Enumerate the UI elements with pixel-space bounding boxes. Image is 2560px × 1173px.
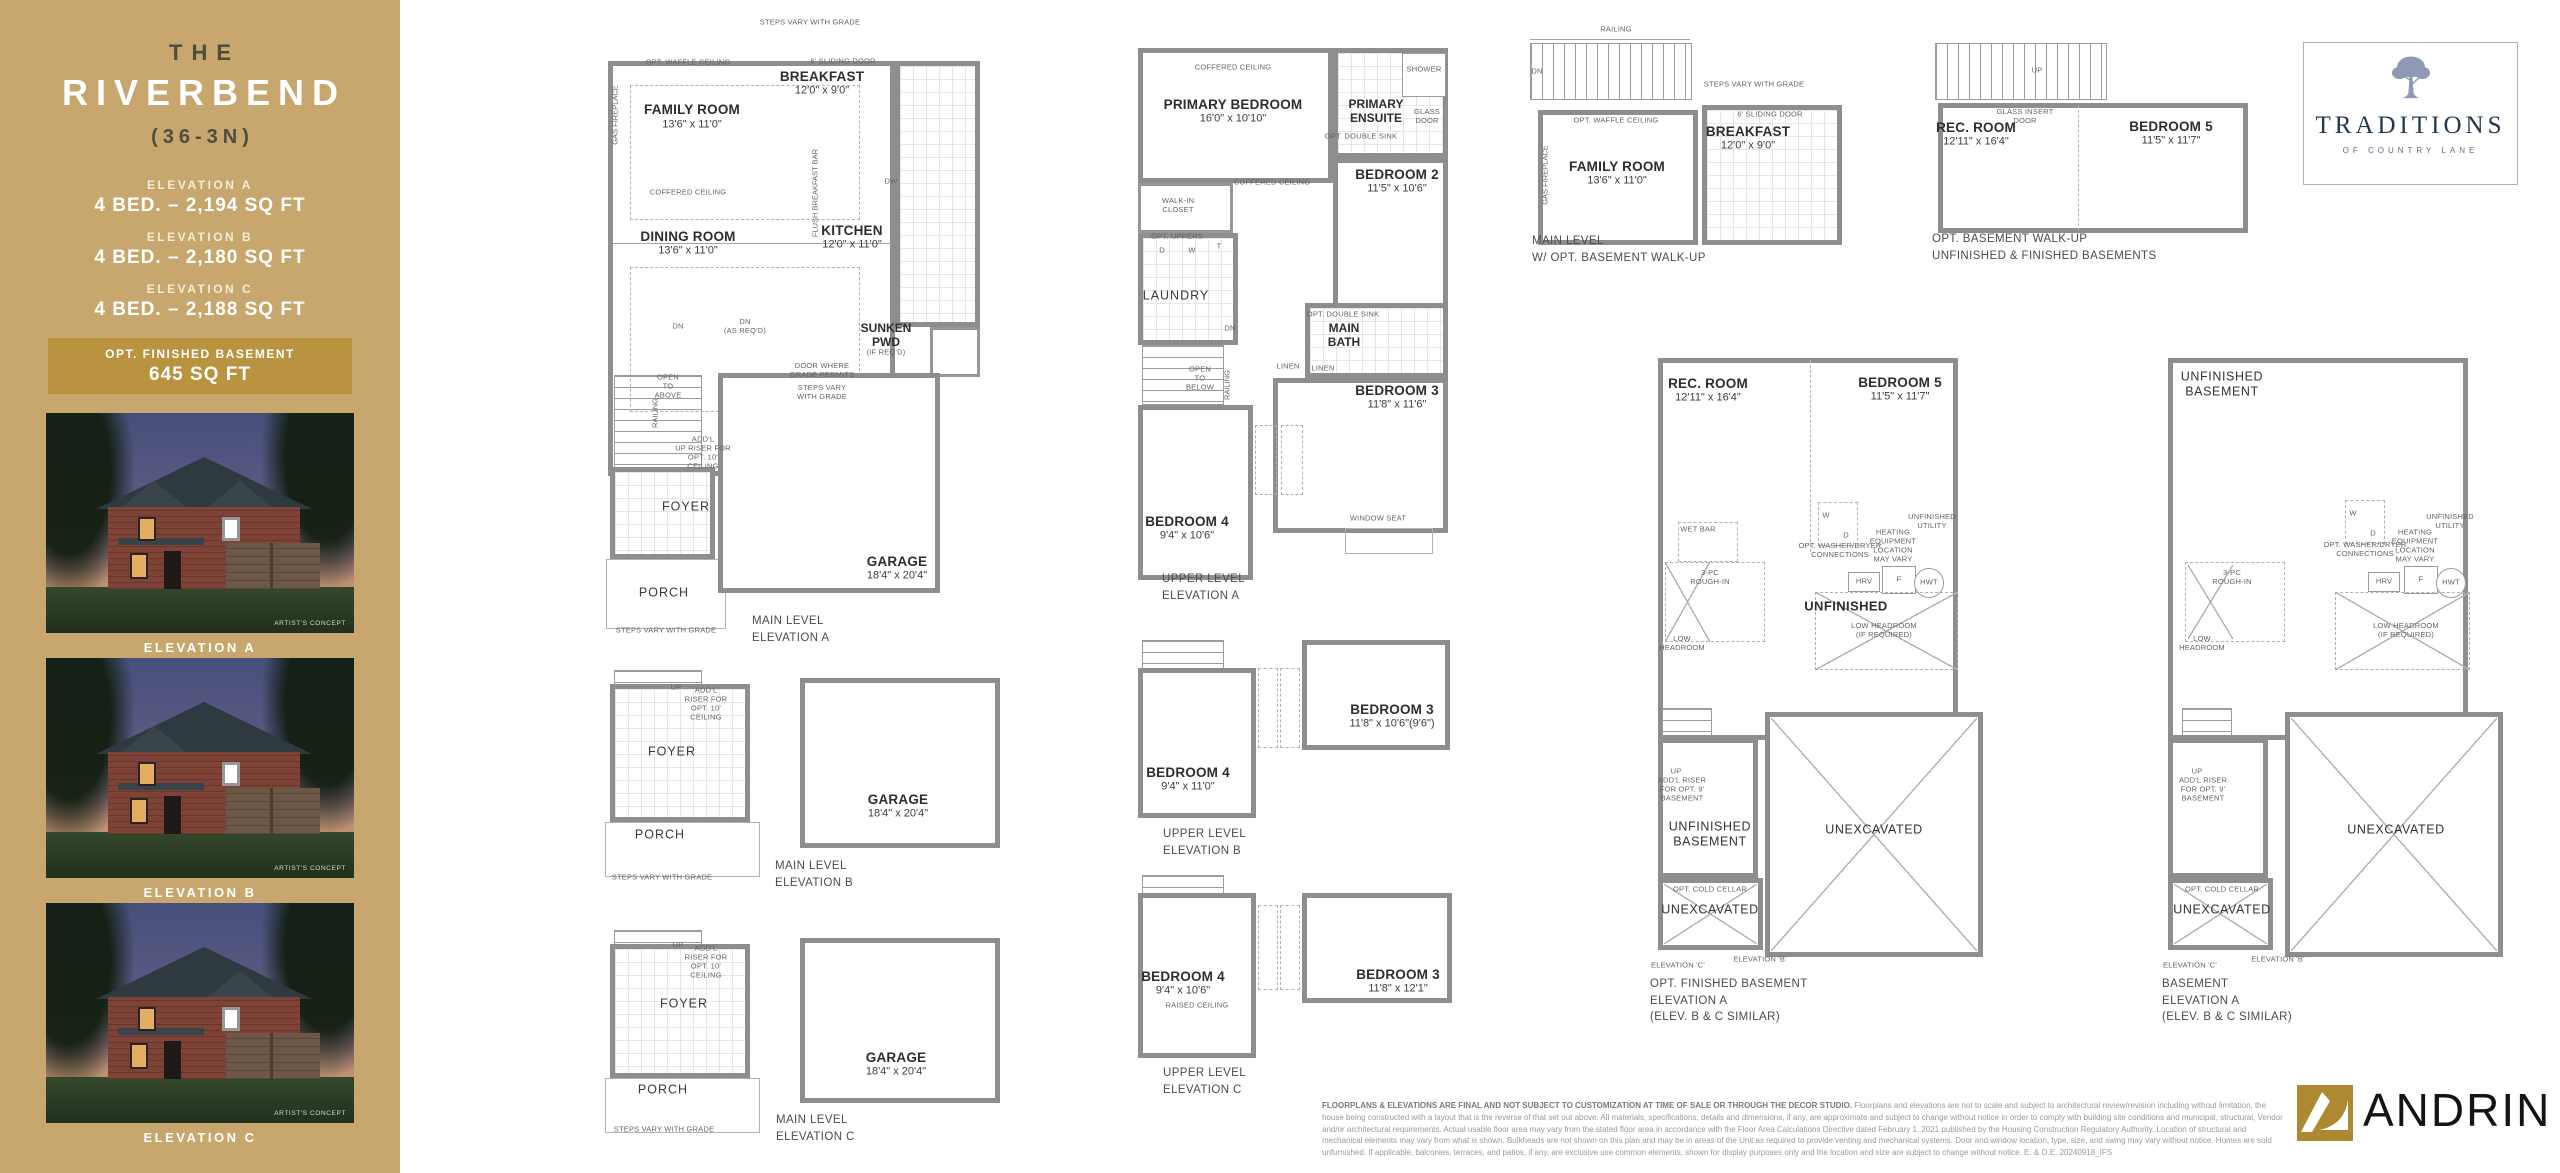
plan-label: BEDROOM 3 bbox=[1355, 383, 1439, 399]
plan-label: RAILING bbox=[652, 398, 661, 428]
washer-dryer-outline bbox=[2345, 500, 2385, 544]
shower-stall bbox=[1402, 53, 1446, 97]
plan-upper-level-elevation-c: BEDROOM 49'4" x 10'6"RAISED CEILINGBEDRO… bbox=[1130, 875, 1560, 1135]
stairs bbox=[1142, 640, 1224, 670]
plan-label: UNFINISHED BASEMENT bbox=[1669, 819, 1751, 849]
plan-label: SUNKEN PWD bbox=[861, 321, 912, 349]
garage-illustration bbox=[226, 788, 320, 834]
plan-label: 11'8" x 11'6" bbox=[1368, 399, 1427, 412]
opt-basement-band: OPT. FINISHED BASEMENT 645 SQ FT bbox=[48, 338, 352, 394]
plan-label: UNFINISHED BASEMENT bbox=[2181, 369, 2263, 399]
plan-label: GARAGE bbox=[868, 792, 928, 808]
closet-outline bbox=[1255, 425, 1277, 495]
plan-label: PRIMARY ENSUITE bbox=[1349, 97, 1404, 125]
bedroom-3-outline bbox=[1302, 640, 1450, 750]
plan-label: BEDROOM 3 bbox=[1356, 967, 1440, 983]
plan-label: RAILING bbox=[1224, 370, 1233, 400]
andrin-logo: ANDRIN bbox=[2297, 1085, 2560, 1143]
plan-label: HEATING EQUIPMENT LOCATION MAY VARY bbox=[1870, 528, 1916, 563]
plan-label: LOW HEADROOM bbox=[2179, 635, 2225, 653]
photo-label-elevation-a: ELEVATION A bbox=[46, 633, 354, 661]
window-illustration bbox=[130, 1043, 148, 1069]
plan-label: ADD'L RISER FOR OPT. 9' BASEMENT bbox=[2179, 777, 2227, 804]
plan-label: BEDROOM 3 bbox=[1350, 702, 1434, 718]
plan-label: HRV bbox=[2376, 578, 2392, 587]
tree-icon bbox=[2385, 53, 2437, 105]
plan-caption: MAIN LEVEL ELEVATION C bbox=[776, 1112, 855, 1145]
plan-label: REC. ROOM bbox=[1936, 120, 2016, 136]
closet-outline bbox=[1280, 905, 1300, 990]
plan-label: BEDROOM 5 bbox=[1858, 375, 1942, 391]
plan-label: MAIN BATH bbox=[1328, 321, 1360, 349]
plan-label: OPT. UPPERS bbox=[1151, 233, 1203, 242]
elevation-c-photo-card: ARTIST'S CONCEPT ELEVATION C bbox=[46, 903, 354, 1151]
model-prefix: THE bbox=[0, 40, 400, 66]
garage-illustration bbox=[226, 1033, 320, 1079]
plan-label: 12'11" x 16'4" bbox=[1675, 392, 1741, 405]
elevation-a-photo-card: ARTIST'S CONCEPT ELEVATION A bbox=[46, 413, 354, 661]
plan-label: 9'4" x 10'6" bbox=[1156, 985, 1210, 998]
plan-label: FOYER bbox=[660, 997, 708, 1012]
andrin-mark-icon bbox=[2297, 1085, 2353, 1141]
plan-caption: UPPER LEVEL ELEVATION C bbox=[1163, 1065, 1246, 1098]
plan-label: LOW HEADROOM bbox=[1659, 635, 1705, 653]
plan-label: FOYER bbox=[662, 500, 710, 515]
plan-label: LAUNDRY bbox=[1143, 289, 1210, 304]
door-illustration bbox=[164, 551, 181, 589]
stairs bbox=[1935, 43, 2107, 100]
railing-line bbox=[1530, 39, 1690, 40]
plan-label: GARAGE bbox=[867, 554, 927, 570]
plan-label: DN (AS REQ'D) bbox=[724, 318, 766, 336]
plan-label: SHOWER bbox=[1407, 66, 1442, 75]
plan-main-level-elevation-c: UPADD'L RISER FOR OPT. 10' CEILINGFOYERP… bbox=[600, 930, 1020, 1173]
plan-label: 6' SLIDING DOOR bbox=[810, 58, 875, 67]
plan-label: W bbox=[1188, 247, 1195, 256]
model-code: (36-3N) bbox=[0, 126, 400, 149]
plan-label: UP bbox=[671, 684, 682, 693]
plan-label: BEDROOM 2 bbox=[1355, 167, 1439, 183]
porch-roof-illustration bbox=[118, 1028, 204, 1035]
plan-caption: UPPER LEVEL ELEVATION B bbox=[1163, 826, 1246, 859]
elevation-a-summary: ELEVATION A 4 BED. – 2,194 SQ FT bbox=[0, 178, 400, 217]
plan-label: D bbox=[1159, 247, 1165, 256]
bedroom-4-outline bbox=[1138, 405, 1253, 580]
plan-caption: UPPER LEVEL ELEVATION A bbox=[1162, 571, 1245, 604]
porch-roof-illustration bbox=[118, 783, 204, 790]
plan-label: REC. ROOM bbox=[1668, 376, 1748, 392]
plan-label: GAS FIREPLACE bbox=[1542, 145, 1551, 205]
plan-label: T bbox=[1217, 243, 1222, 252]
plan-label: (IF REQ'D) bbox=[867, 349, 906, 358]
plan-label: BEDROOM 4 bbox=[1146, 765, 1230, 781]
artists-concept-credit: ARTIST'S CONCEPT bbox=[274, 620, 346, 627]
unfinished-basement-hall bbox=[2168, 738, 2268, 878]
plan-label: FAMILY ROOM bbox=[1569, 159, 1665, 175]
plan-label: HWT bbox=[1920, 579, 1938, 588]
door-illustration bbox=[164, 796, 181, 834]
plan-label: 12'0" x 9'0" bbox=[795, 85, 849, 98]
plan-label: ELEVATION 'B' bbox=[1733, 956, 1787, 965]
door-illustration bbox=[164, 1041, 181, 1079]
plan-label: D bbox=[1843, 532, 1849, 541]
plan-label: 13'6" x 11'0" bbox=[1587, 175, 1647, 188]
plan-label: 11'5" x 10'6" bbox=[1367, 183, 1427, 196]
plan-label: STEPS VARY WITH GRADE bbox=[616, 627, 716, 636]
plan-label: HRV bbox=[1856, 578, 1872, 587]
plan-label: STEPS VARY WITH GRADE bbox=[760, 19, 860, 28]
plan-label: UNEXCAVATED bbox=[2173, 903, 2271, 918]
plan-label: OPT. COLD CELLAR bbox=[2185, 886, 2259, 895]
house-rendering-elevation-a: ARTIST'S CONCEPT bbox=[46, 413, 354, 633]
plan-label: 18'4" x 20'4" bbox=[866, 1066, 926, 1079]
plan-caption: MAIN LEVEL ELEVATION B bbox=[775, 858, 853, 891]
plan-label: BEDROOM 4 bbox=[1141, 969, 1225, 985]
sidebar: THE RIVERBEND (36-3N) ELEVATION A 4 BED.… bbox=[0, 0, 400, 1173]
plan-label: GAS FIREPLACE bbox=[612, 85, 621, 145]
plan-label: DOOR WHERE GRADE PERMITS bbox=[790, 362, 855, 380]
elevation-c-spec: 4 BED. – 2,188 SQ FT bbox=[0, 299, 400, 321]
plan-opt-finished-basement: REC. ROOM12'11" x 16'4"BEDROOM 511'5" x … bbox=[1650, 350, 2090, 1012]
plan-label: 18'4" x 20'4" bbox=[867, 570, 927, 583]
plan-label: ELEVATION 'C' bbox=[2163, 962, 2217, 971]
house-rendering-elevation-c: ARTIST'S CONCEPT bbox=[46, 903, 354, 1123]
plan-label: FAMILY ROOM bbox=[644, 102, 740, 118]
plan-label: ELEVATION 'B' bbox=[2251, 956, 2305, 965]
plan-label: UNEXCAVATED bbox=[2347, 823, 2445, 838]
disclaimer-bold-intro: FLOORPLANS & ELEVATIONS ARE FINAL AND NO… bbox=[1322, 1101, 1852, 1110]
plan-label: 12'0" x 9'0" bbox=[1721, 140, 1775, 153]
plan-label: 11'5" x 11'7" bbox=[1871, 391, 1930, 404]
plan-label: 11'8" x 12'1" bbox=[1368, 983, 1428, 996]
plan-label: UNEXCAVATED bbox=[1825, 823, 1923, 838]
andrin-wordmark: ANDRIN bbox=[2363, 1083, 2551, 1137]
window-illustration bbox=[222, 1007, 240, 1031]
plan-label: 6' SLIDING DOOR bbox=[1737, 111, 1802, 120]
plan-caption: MAIN LEVEL W/ OPT. BASEMENT WALK-UP bbox=[1532, 233, 1706, 266]
window-illustration bbox=[138, 517, 156, 541]
porch-roof-illustration bbox=[118, 538, 204, 545]
stairs bbox=[1530, 43, 1692, 100]
plan-label: LINEN bbox=[1311, 365, 1334, 374]
traditions-wordmark: TRADITIONS bbox=[2304, 112, 2517, 140]
plan-upper-level-elevation-b: BEDROOM 311'8" x 10'6"(9'6")BEDROOM 49'4… bbox=[1130, 640, 1560, 895]
elevation-a-spec: 4 BED. – 2,194 SQ FT bbox=[0, 195, 400, 217]
plan-upper-level-elevation-a: COFFERED CEILINGPRIMARY BEDROOM16'0" x 1… bbox=[1130, 15, 1560, 650]
plan-label: 12'11" x 16'4" bbox=[1943, 136, 2009, 149]
traditions-logo: TRADITIONS OF COUNTRY LANE bbox=[2303, 42, 2518, 185]
plan-label: UNFINISHED UTILITY bbox=[1908, 513, 1956, 531]
window-illustration bbox=[138, 762, 156, 786]
plan-label: DN bbox=[1224, 325, 1235, 334]
plan-label: DN bbox=[1531, 68, 1542, 77]
elevation-b-label: ELEVATION B bbox=[0, 230, 400, 244]
elevation-a-label: ELEVATION A bbox=[0, 178, 400, 192]
plan-label: OPT. WAFFLE CEILING bbox=[1574, 117, 1659, 126]
closet-outline bbox=[1258, 668, 1278, 748]
plan-label: UNEXCAVATED bbox=[1661, 903, 1759, 918]
plan-label: OPEN TO BELOW bbox=[1186, 366, 1214, 393]
riverbend-floorplan-brochure: { "sidebar": { "title_pre": "THE", "titl… bbox=[0, 0, 2560, 1173]
plan-label: 3-PC ROUGH-IN bbox=[2212, 569, 2252, 587]
plan-label: DINING ROOM bbox=[640, 229, 735, 245]
plan-label: RAILING bbox=[1600, 26, 1631, 35]
photo-label-elevation-c: ELEVATION C bbox=[46, 1123, 354, 1151]
plan-caption: OPT. BASEMENT WALK-UP UNFINISHED & FINIS… bbox=[1932, 231, 2157, 264]
plan-label: ADD'L RISER FOR OPT. 10' CEILING bbox=[685, 686, 728, 721]
plan-label: UP bbox=[673, 942, 684, 951]
artists-concept-credit: ARTIST'S CONCEPT bbox=[274, 865, 346, 872]
closet-outline bbox=[1281, 425, 1303, 495]
plan-label: D bbox=[2370, 530, 2376, 539]
plan-label: OPT. DOUBLE SINK bbox=[1325, 133, 1397, 142]
plan-label: STEPS VARY WITH GRADE bbox=[1704, 81, 1804, 90]
plan-label: 16'0" x 10'10" bbox=[1200, 113, 1266, 126]
plan-label: WET BAR bbox=[1680, 526, 1715, 535]
closet-outline bbox=[1258, 905, 1278, 990]
plan-label: OPT. WAFFLE CEILING bbox=[646, 59, 731, 68]
plan-label: BREAKFAST bbox=[1706, 124, 1790, 140]
window-illustration bbox=[138, 1007, 156, 1031]
plan-label: F bbox=[1897, 576, 1902, 585]
plan-caption: MAIN LEVEL ELEVATION A bbox=[752, 613, 829, 646]
plan-label: KITCHEN bbox=[821, 223, 882, 239]
kitchen-breakfast-area bbox=[895, 61, 980, 327]
plan-label: PORCH bbox=[639, 586, 689, 601]
plan-caption: BASEMENT ELEVATION A (ELEV. B & C SIMILA… bbox=[2162, 976, 2292, 1026]
plan-main-level-walkup: RAILINGDNSTEPS VARY WITH GRADEOPT. WAFFL… bbox=[1530, 15, 1960, 265]
opt-basement-label: OPT. FINISHED BASEMENT bbox=[48, 347, 352, 361]
elevation-c-summary: ELEVATION C 4 BED. – 2,188 SQ FT bbox=[0, 282, 400, 321]
plan-label: GARAGE bbox=[866, 1050, 926, 1066]
plan-label: HWT bbox=[2442, 579, 2460, 588]
garage-outline bbox=[800, 678, 1000, 848]
plan-label: 11'8" x 10'6"(9'6") bbox=[1349, 718, 1434, 731]
plan-label: BEDROOM 5 bbox=[2129, 119, 2213, 135]
plan-label: 13'6" x 11'0" bbox=[662, 119, 722, 132]
plan-label: STEPS VARY WITH GRADE bbox=[797, 384, 847, 402]
house-rendering-elevation-b: ARTIST'S CONCEPT bbox=[46, 658, 354, 878]
plan-label: W bbox=[1822, 512, 1829, 521]
plan-label: WALK-IN CLOSET bbox=[1162, 197, 1194, 215]
window-illustration bbox=[222, 762, 240, 786]
plan-label: FLUSH BREAKFAST BAR bbox=[812, 149, 821, 237]
plan-label: STEPS VARY WITH GRADE bbox=[612, 874, 712, 883]
plan-label: 9'4" x 11'0" bbox=[1161, 781, 1214, 794]
plan-label: COFFERED CEILING bbox=[650, 189, 727, 198]
plan-label: 11'5" x 11'7" bbox=[2142, 135, 2201, 148]
model-name: RIVERBEND bbox=[0, 72, 400, 114]
plan-label: UP bbox=[2032, 67, 2043, 76]
traditions-tagline: OF COUNTRY LANE bbox=[2304, 146, 2517, 155]
plan-label: RAISED CEILING bbox=[1166, 1002, 1229, 1011]
plan-basement: UNFINISHED BASEMENTWDOPT. WASHER/DRYER C… bbox=[2160, 350, 2560, 1012]
plan-label: GLASS DOOR bbox=[1414, 108, 1440, 126]
plan-main-level-elevation-a: STEPS VARY WITH GRADEOPT. WAFFLE CEILING… bbox=[600, 15, 1020, 665]
plan-label: ADD'L RISER FOR OPT. 10' CEILING bbox=[685, 944, 728, 979]
plan-label: LOW HEADROOM (IF REQUIRED) bbox=[2373, 622, 2439, 640]
plan-label: FOYER bbox=[648, 745, 696, 760]
plan-label: PORCH bbox=[638, 1083, 688, 1098]
plan-main-level-elevation-b: UPADD'L RISER FOR OPT. 10' CEILINGFOYERP… bbox=[600, 670, 1020, 905]
plan-label: HEATING EQUIPMENT LOCATION MAY VARY bbox=[2392, 528, 2438, 563]
room-partition bbox=[1810, 360, 1811, 552]
plan-label: LINEN bbox=[1276, 363, 1299, 372]
plan-label: ADD'L UP RISER FOR OPT. 10' CEILING bbox=[675, 435, 731, 470]
window-illustration bbox=[130, 798, 148, 824]
plan-label: LOW HEADROOM (IF REQUIRED) bbox=[1851, 622, 1917, 640]
window-seat-bay bbox=[1345, 528, 1433, 554]
plan-label: ELEVATION 'C' bbox=[1651, 962, 1705, 971]
plan-label: F bbox=[2419, 576, 2424, 585]
plan-label: 3-PC ROUGH-IN bbox=[1690, 569, 1730, 587]
plan-label: BEDROOM 4 bbox=[1145, 514, 1229, 530]
plan-label: ADD'L RISER FOR OPT. 9' BASEMENT bbox=[1658, 777, 1706, 804]
washer-dryer-outline bbox=[1818, 502, 1858, 546]
elevation-b-photo-card: ARTIST'S CONCEPT ELEVATION B bbox=[46, 658, 354, 906]
plan-caption: OPT. FINISHED BASEMENT ELEVATION A (ELEV… bbox=[1650, 976, 1808, 1026]
photo-label-elevation-b: ELEVATION B bbox=[46, 878, 354, 906]
unfinished-basement-hall bbox=[1658, 738, 1758, 878]
plan-label: W bbox=[2349, 510, 2356, 519]
stairs bbox=[1142, 875, 1224, 895]
artists-concept-credit: ARTIST'S CONCEPT bbox=[274, 1110, 346, 1117]
elevation-b-summary: ELEVATION B 4 BED. – 2,180 SQ FT bbox=[0, 230, 400, 269]
plan-label: DW bbox=[885, 178, 898, 187]
plan-label: COFFERED CEILING bbox=[1234, 179, 1311, 188]
plan-label: 9'4" x 10'6" bbox=[1160, 530, 1214, 543]
plan-label: BREAKFAST bbox=[780, 69, 864, 85]
plan-label: 18'4" x 20'4" bbox=[868, 808, 928, 821]
plan-label: OPT. COLD CELLAR bbox=[1673, 886, 1747, 895]
plan-label: STEPS VARY WITH GRADE bbox=[614, 1126, 714, 1135]
plan-label: OPEN TO ABOVE bbox=[655, 374, 682, 401]
closet-outline bbox=[1280, 668, 1300, 748]
room-partition bbox=[2078, 105, 2079, 231]
bedroom-4-outline bbox=[1138, 668, 1256, 818]
elevation-b-spec: 4 BED. – 2,180 SQ FT bbox=[0, 247, 400, 269]
plan-label: PORCH bbox=[635, 828, 685, 843]
plan-label: 12'0" x 11'0" bbox=[822, 239, 882, 252]
plan-label: UNFINISHED bbox=[1804, 598, 1887, 613]
plan-label: OPT. DOUBLE SINK bbox=[1307, 311, 1379, 320]
plan-label: WINDOW SEAT bbox=[1350, 515, 1406, 524]
window-illustration bbox=[130, 553, 148, 579]
powder-room-outline bbox=[930, 327, 980, 377]
plan-label: DN bbox=[672, 323, 683, 332]
elevation-c-label: ELEVATION C bbox=[0, 282, 400, 296]
plan-label: COFFERED CEILING bbox=[1195, 64, 1272, 73]
window-illustration bbox=[222, 517, 240, 541]
garage-illustration bbox=[226, 543, 320, 589]
opt-basement-value: 645 SQ FT bbox=[48, 364, 352, 386]
legal-disclaimer: FLOORPLANS & ELEVATIONS ARE FINAL AND NO… bbox=[1322, 1100, 2284, 1159]
plan-label: PRIMARY BEDROOM bbox=[1164, 97, 1303, 113]
plan-label: 13'6" x 11'0" bbox=[658, 245, 718, 258]
